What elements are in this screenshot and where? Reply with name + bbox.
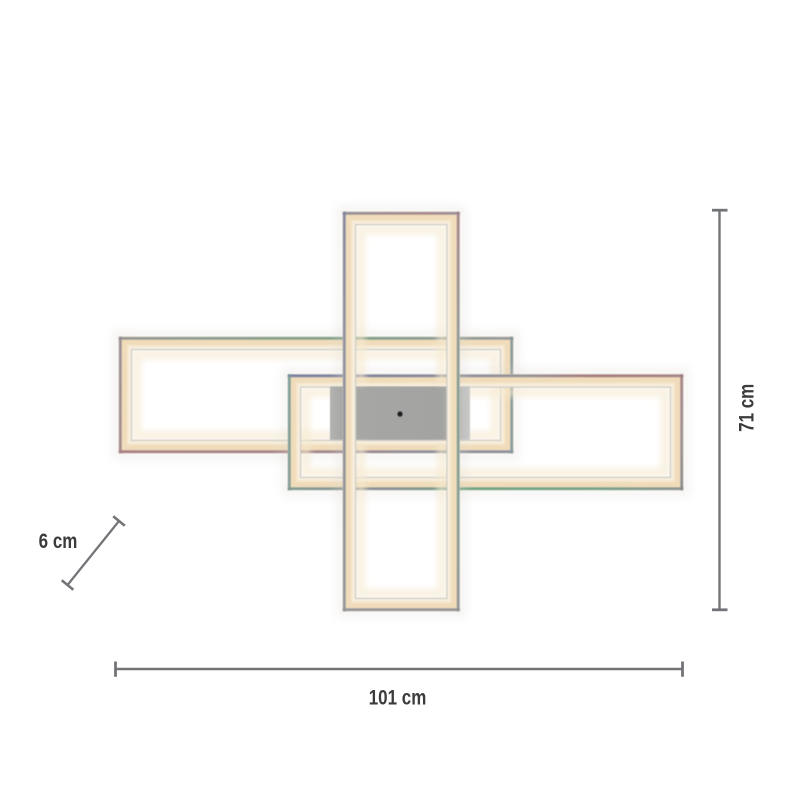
svg-text:71 cm: 71 cm xyxy=(735,384,759,432)
svg-text:101 cm: 101 cm xyxy=(369,686,427,710)
svg-text:6 cm: 6 cm xyxy=(39,529,78,553)
